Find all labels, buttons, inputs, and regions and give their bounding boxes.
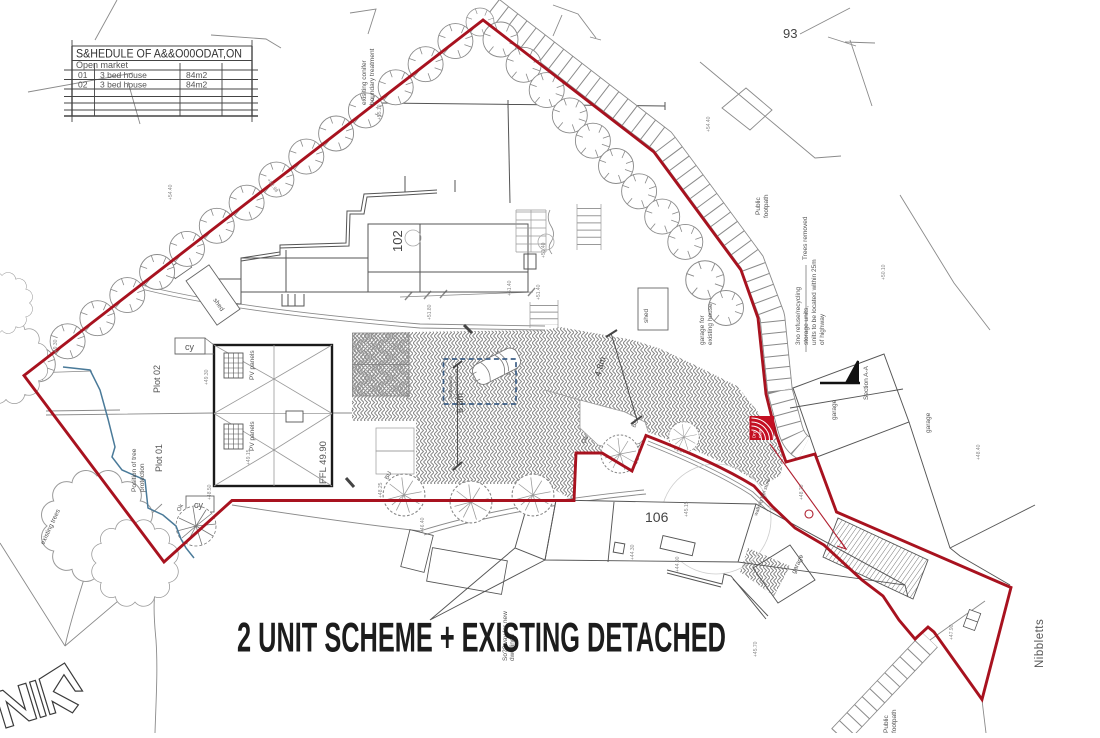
svg-text:+51.40: +51.40 bbox=[536, 284, 542, 300]
svg-text:Nibbletts: Nibbletts bbox=[1034, 619, 1046, 668]
svg-text:+50.10: +50.10 bbox=[881, 264, 887, 280]
svg-text:+51.40: +51.40 bbox=[541, 242, 547, 258]
svg-text:+48.40: +48.40 bbox=[976, 444, 982, 460]
svg-text:cy: cy bbox=[185, 342, 195, 352]
svg-text:+48.25: +48.25 bbox=[378, 482, 384, 498]
svg-text:+44.30: +44.30 bbox=[630, 544, 636, 560]
svg-text:Plot 02: Plot 02 bbox=[152, 365, 162, 393]
svg-text:units to be located within 25m: units to be located within 25m bbox=[811, 259, 818, 345]
svg-text:102: 102 bbox=[390, 230, 405, 252]
svg-text:2 UNIT SCHEME + EXISTING DETAC: 2 UNIT SCHEME + EXISTING DETACHED bbox=[237, 614, 726, 661]
svg-text:+49.30: +49.30 bbox=[204, 369, 210, 385]
svg-text:02: 02 bbox=[78, 80, 88, 90]
svg-text:garage: garage bbox=[831, 399, 838, 420]
svg-text:01: 01 bbox=[78, 70, 88, 80]
svg-text:existing house: existing house bbox=[707, 303, 714, 345]
svg-text:Plot 01: Plot 01 bbox=[154, 444, 164, 472]
svg-text:3 bed house: 3 bed house bbox=[100, 70, 147, 80]
svg-text:84m2: 84m2 bbox=[186, 80, 208, 90]
svg-text:+51.40: +51.40 bbox=[507, 280, 513, 296]
svg-text:+50.75: +50.75 bbox=[406, 384, 412, 400]
svg-text:for new houses: for new houses bbox=[454, 368, 459, 399]
svg-text:84m2: 84m2 bbox=[186, 70, 208, 80]
svg-text:storage units,: storage units, bbox=[803, 306, 810, 345]
svg-text:Sodtcawctv: Sodtcawctv bbox=[448, 375, 453, 399]
svg-text:+46.40: +46.40 bbox=[420, 517, 426, 533]
svg-text:106: 106 bbox=[645, 509, 669, 525]
svg-text:Position of tree: Position of tree bbox=[131, 448, 138, 492]
svg-text:of highway: of highway bbox=[819, 313, 826, 345]
svg-text:garage: garage bbox=[925, 412, 932, 433]
svg-text:footpath: footpath bbox=[891, 709, 898, 733]
svg-text:+51.80: +51.80 bbox=[427, 304, 433, 320]
svg-text:+54.40: +54.40 bbox=[168, 184, 174, 200]
svg-text:+54.40: +54.40 bbox=[706, 116, 712, 132]
svg-text:exisiting conifer: exisiting conifer bbox=[361, 59, 368, 105]
svg-text:+48.20: +48.20 bbox=[799, 484, 805, 500]
svg-text:+47.90: +47.90 bbox=[949, 624, 955, 640]
svg-text:garage for: garage for bbox=[699, 315, 706, 345]
svg-text:Dry: Dry bbox=[752, 430, 757, 438]
svg-text:Section A-A: Section A-A bbox=[863, 365, 870, 400]
svg-text:PV panels: PV panels bbox=[249, 350, 256, 380]
svg-text:PV panels: PV panels bbox=[249, 421, 256, 451]
svg-text:boundary treatment: boundary treatment bbox=[369, 48, 376, 105]
svg-text:footpath: footpath bbox=[763, 194, 770, 218]
svg-text:S&HEDULE OF A&&O00ODAT,ON: S&HEDULE OF A&&O00ODAT,ON bbox=[76, 49, 242, 61]
svg-text:FFL 49.90: FFL 49.90 bbox=[318, 441, 329, 484]
svg-text:+44.90: +44.90 bbox=[675, 556, 681, 572]
svg-text:+49.30: +49.30 bbox=[53, 339, 59, 355]
svg-text:+45.70: +45.70 bbox=[753, 641, 759, 657]
svg-text:protection: protection bbox=[139, 463, 146, 492]
svg-text:shed: shed bbox=[643, 309, 650, 323]
svg-text:3no refuse/recycling: 3no refuse/recycling bbox=[795, 286, 802, 345]
svg-text:Public: Public bbox=[755, 197, 762, 215]
svg-text:+49.15: +49.15 bbox=[246, 449, 252, 465]
svg-text:riser: riser bbox=[758, 429, 763, 438]
svg-text:+55.10: +55.10 bbox=[377, 104, 383, 120]
svg-text:93: 93 bbox=[783, 26, 797, 41]
svg-text:+48.50: +48.50 bbox=[207, 484, 213, 500]
svg-text:Open market: Open market bbox=[76, 60, 129, 70]
svg-text:+45.15: +45.15 bbox=[684, 501, 690, 517]
svg-text:cy: cy bbox=[194, 500, 204, 510]
svg-text:Trees removed: Trees removed bbox=[802, 216, 809, 260]
svg-text:Public: Public bbox=[883, 715, 890, 733]
svg-text:3 bed house: 3 bed house bbox=[100, 80, 147, 90]
